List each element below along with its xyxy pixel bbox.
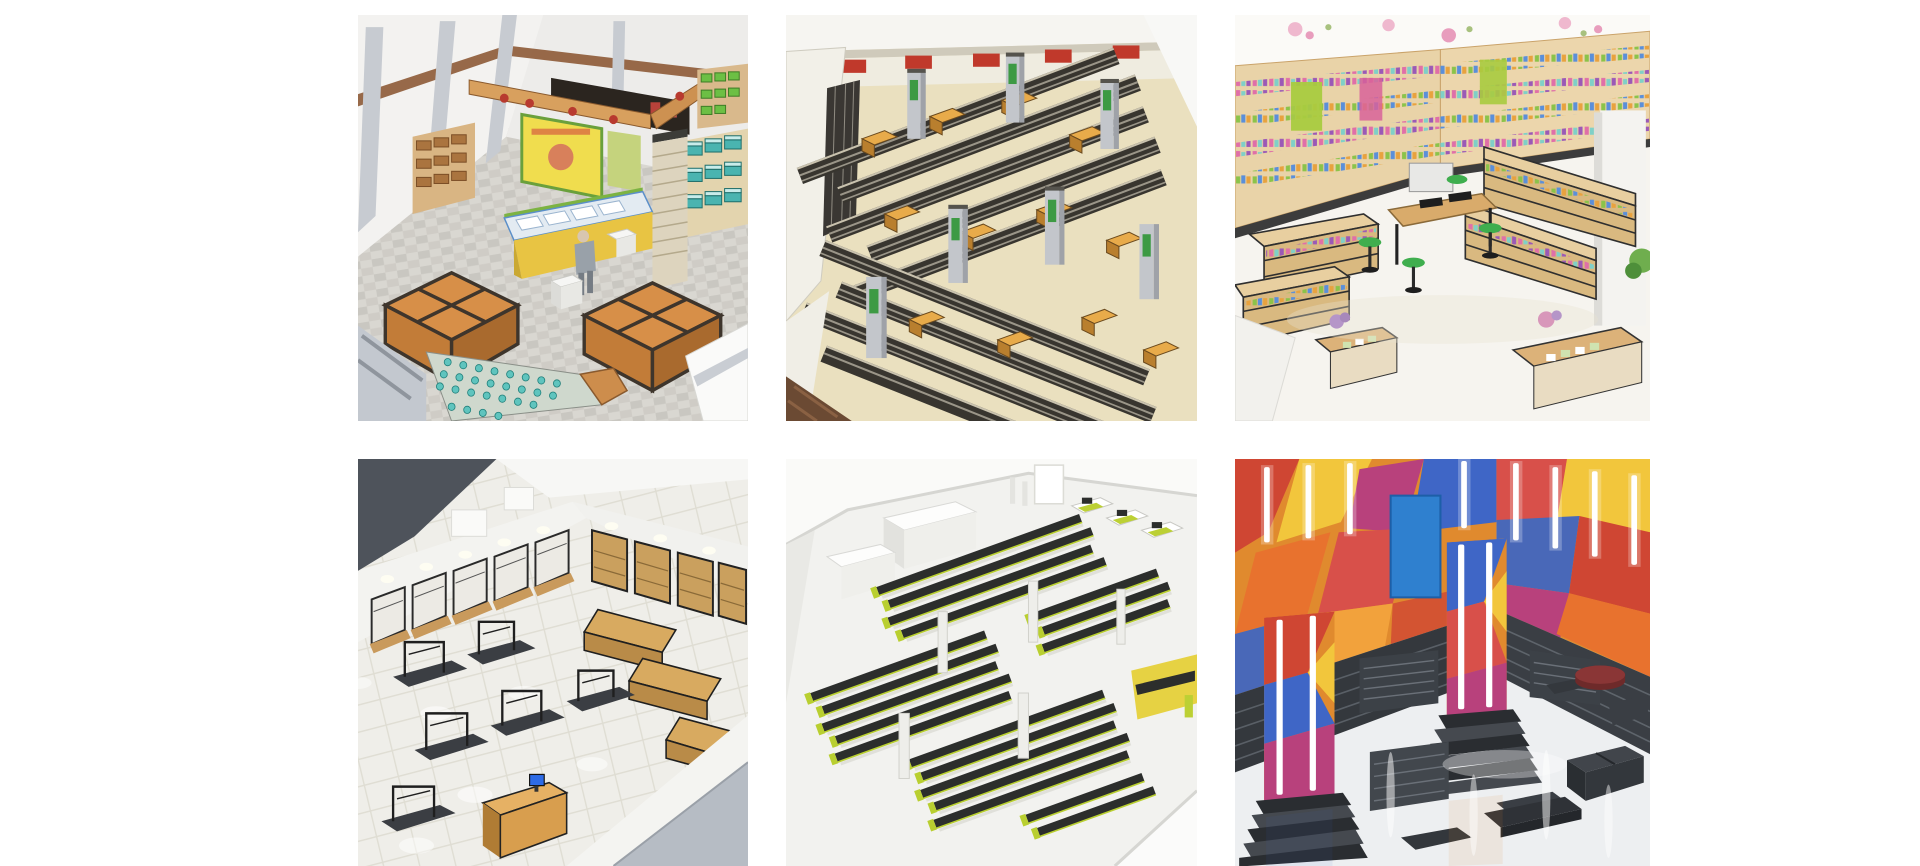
graffiti-fashion-store-illustration [1235, 459, 1650, 866]
image-gallery [0, 0, 1920, 850]
blue-wall-panel [1391, 496, 1441, 598]
floor-reflection [1287, 295, 1598, 344]
gallery-image-sketchup-supermarket-corner[interactable] [358, 15, 748, 421]
sketchup-supermarket-aisles-illustration [786, 15, 1197, 421]
gallery-image-cosmetics-store[interactable] [1235, 15, 1650, 421]
gallery-image-sketchup-supermarket-aisles[interactable] [786, 15, 1197, 421]
white-model-supermarket-illustration [786, 459, 1197, 866]
clothing-store-illustration [358, 459, 748, 866]
sketchup-supermarket-corner-illustration [358, 15, 748, 421]
gallery-image-graffiti-fashion-store[interactable] [1235, 459, 1650, 866]
gallery-image-white-model-supermarket[interactable] [786, 459, 1197, 866]
red-ottoman [1575, 666, 1625, 690]
cosmetics-store-illustration [1235, 15, 1650, 421]
gallery-image-clothing-store[interactable] [358, 459, 748, 866]
